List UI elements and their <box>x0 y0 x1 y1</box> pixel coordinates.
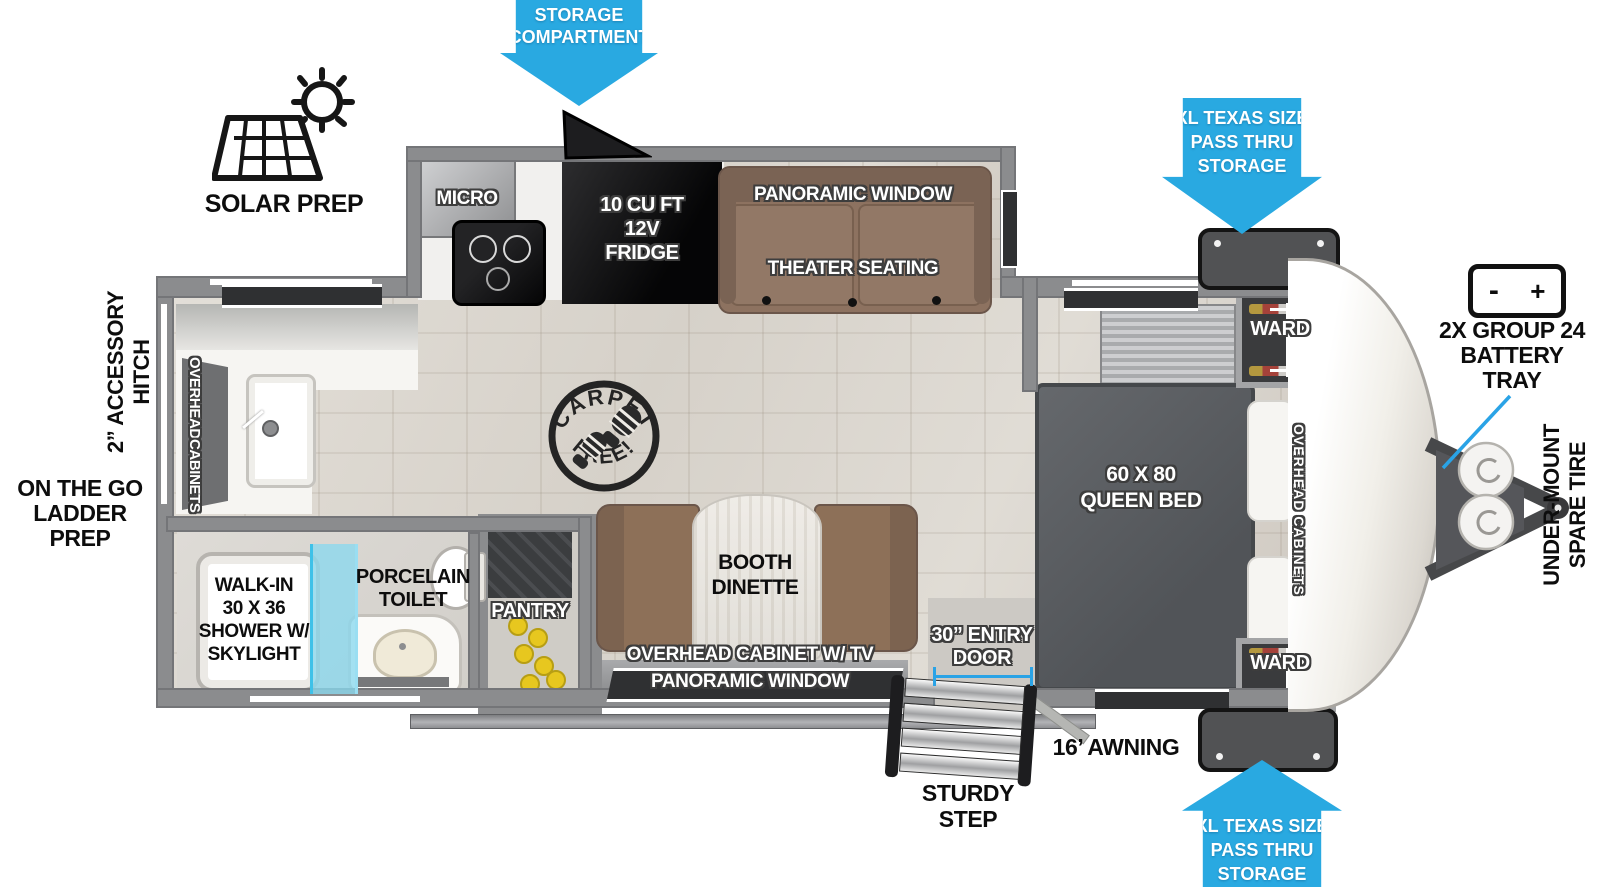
battery-line3: TRAY <box>1424 368 1600 393</box>
shower-line3: SHOWER W/ <box>180 620 328 643</box>
storage-compartment-arrow: STORAGE COMPARTMENT <box>500 0 658 106</box>
theater-seating-label: THEATER SEATING <box>718 258 988 280</box>
slide-wall-left <box>406 146 422 298</box>
window-strip <box>250 696 420 702</box>
awning-label: 16’ AWNING <box>1036 734 1196 761</box>
refrigerator: 10 CU FT 12V FRIDGE <box>562 154 722 304</box>
propane-tank-icon <box>1459 443 1513 497</box>
passthru-bottom-line2: PASS THRU <box>1182 838 1342 862</box>
step-tread <box>901 728 1022 755</box>
toilet-label: PORCELAIN TOILET <box>346 566 480 612</box>
panoramic-window-bottom-label: PANORAMIC WINDOW <box>602 671 898 693</box>
pantry-upper-shelf <box>488 524 572 598</box>
queen-bed-label: 60 X 80 QUEEN BED <box>1045 462 1237 514</box>
pantry-can <box>546 670 566 690</box>
passthru-bottom-line3: STORAGE <box>1182 862 1342 886</box>
passthru-bottom-line1: XL TEXAS SIZE <box>1182 814 1342 838</box>
carpet-free-stamp: CARPET FREE! <box>546 378 662 494</box>
bed-line1: 60 X 80 <box>1045 462 1237 488</box>
burner-icon <box>503 235 531 263</box>
passthru-top-line1: XL TEXAS SIZE <box>1162 106 1322 130</box>
kitchen-sink <box>246 374 316 488</box>
cupholder-icon <box>762 296 771 305</box>
rv-floorplan: OVERHEAD CABINETS MICRO 10 CU FT 12V FRI… <box>0 0 1600 887</box>
dinette-line1: BOOTH <box>693 550 817 575</box>
hitch-line1: 2” ACCESSORY <box>103 277 129 467</box>
burner-icon <box>469 235 497 263</box>
screw-icon <box>1216 753 1223 760</box>
vanity-sink-bowl <box>373 629 437 679</box>
passthru-hatch-bottom <box>1198 708 1338 772</box>
cupholder-icon <box>848 298 857 307</box>
fridge-line1: 10 CU FT <box>562 193 722 217</box>
burner-icon <box>486 267 510 291</box>
step-tread <box>903 703 1024 730</box>
vanity-base <box>355 677 449 687</box>
kitchen-oc-line2: CABINETS <box>184 439 228 512</box>
panoramic-window-top-label: PANORAMIC WINDOW <box>718 184 988 206</box>
wardrobe-bottom-label: WARD <box>1236 652 1324 675</box>
slide-wall-top <box>406 146 1016 162</box>
solar-prep-label: SOLAR PREP <box>200 190 368 219</box>
battery-icon: - + <box>1468 264 1566 318</box>
hitch-line2: HITCH <box>129 277 155 467</box>
sturdy-step-label: STURDY STEP <box>900 780 1036 832</box>
cupholder-icon <box>932 296 941 305</box>
screw-icon <box>1214 240 1221 247</box>
storage-arrow-line2: COMPARTMENT <box>500 26 658 48</box>
ladder-line2: LADDER PREP <box>0 501 160 551</box>
dinette-line2: DINETTE <box>693 575 817 600</box>
spare-line1: UNDER-MOUNT <box>1539 410 1565 600</box>
accessory-hitch-label: 2” ACCESSORY HITCH <box>103 277 157 467</box>
fridge-line3: FRIDGE <box>562 241 722 265</box>
bed-line2: QUEEN BED <box>1045 488 1237 514</box>
ladder-prep-label: ON THE GO LADDER PREP <box>0 476 160 551</box>
shower-label: WALK-IN 30 X 36 SHOWER W/ SKYLIGHT <box>180 574 328 666</box>
window-strip <box>1072 280 1198 286</box>
pantry-can <box>528 628 548 648</box>
bath-vanity <box>348 614 462 694</box>
nightstand-top <box>1100 304 1236 388</box>
shower-line1: WALK-IN <box>180 574 328 597</box>
entry-steps <box>885 675 1046 787</box>
toilet-line2: TOILET <box>346 589 480 612</box>
passthru-top-line3: STORAGE <box>1162 154 1322 178</box>
bed-overhead-cabinets-label: OVERHEAD CABINETS <box>1291 390 1323 630</box>
door-dimension-tick <box>1030 667 1033 686</box>
bedroom-stub-wall <box>1022 276 1038 392</box>
spare-tire-label: UNDER-MOUNT SPARE TIRE <box>1539 410 1595 600</box>
fridge-line2: 12V <box>562 217 722 241</box>
slide-window-right <box>1001 190 1019 268</box>
kitchen-oc-line1: OVERHEAD <box>184 357 228 439</box>
stove-cooktop <box>452 220 546 306</box>
door-dimension-tick <box>933 667 936 686</box>
passthru-arrow-top: XL TEXAS SIZE PASS THRU STORAGE <box>1162 98 1322 234</box>
step-line2: STEP <box>900 806 1036 832</box>
step-tread <box>899 753 1020 780</box>
battery-tray-label: 2X GROUP 24 BATTERY TRAY <box>1424 318 1600 393</box>
battery-plus: + <box>1530 276 1545 306</box>
dinette-bench-left <box>596 504 700 652</box>
overhead-cabinet-tv-label: OVERHEAD CABINET W/ TV <box>592 644 908 666</box>
ladder-line1: ON THE GO <box>0 476 160 501</box>
kitchen-counter-backsplash <box>176 304 418 352</box>
rear-window-strip <box>161 304 167 504</box>
kitchen-sink-drain <box>262 420 279 437</box>
screw-icon <box>1317 240 1324 247</box>
shower-line2: 30 X 36 <box>180 597 328 620</box>
door-dimension-line <box>933 675 1033 678</box>
bedroom-window-top <box>1064 288 1198 311</box>
bed-oc-text: OVERHEAD CABINETS <box>1291 424 1323 596</box>
toilet-line1: PORCELAIN <box>346 566 480 589</box>
screw-icon <box>1313 753 1320 760</box>
pantry-can <box>514 644 534 664</box>
spare-line2: SPARE TIRE <box>1565 410 1591 600</box>
storage-arrow-line1: STORAGE <box>500 4 658 26</box>
vanity-faucet <box>399 643 406 650</box>
wardrobe-top-label: WARD <box>1236 318 1324 341</box>
door-line1: 30” ENTRY <box>910 624 1054 647</box>
propane-tank-icon <box>1459 495 1513 549</box>
dinette-bench-right <box>814 504 918 652</box>
sofa-seat-right <box>858 204 982 306</box>
battery-line1: 2X GROUP 24 <box>1424 318 1600 343</box>
shower-line4: SKYLIGHT <box>180 643 328 666</box>
passthru-arrow-bottom: XL TEXAS SIZE PASS THRU STORAGE <box>1182 760 1342 887</box>
microwave-label: MICRO <box>436 188 497 210</box>
pantry-label: PANTRY <box>478 600 582 623</box>
entry-door-label: 30” ENTRY DOOR <box>910 624 1054 670</box>
passthru-top-line2: PASS THRU <box>1162 130 1322 154</box>
battery-line2: BATTERY <box>1424 343 1600 368</box>
dinette-label: BOOTH DINETTE <box>693 550 817 600</box>
kitchen-window <box>222 284 382 308</box>
storage-compartment-flap <box>560 106 652 162</box>
kitchen-overhead-cabinets-label: OVERHEAD CABINETS <box>184 362 228 508</box>
battery-minus: - <box>1489 276 1499 306</box>
solar-prep-icon <box>212 66 372 192</box>
bathroom-wall-top <box>166 516 592 532</box>
queen-bed <box>1035 383 1255 691</box>
sofa-seat-left <box>730 204 854 306</box>
step-line1: STURDY <box>900 780 1036 806</box>
